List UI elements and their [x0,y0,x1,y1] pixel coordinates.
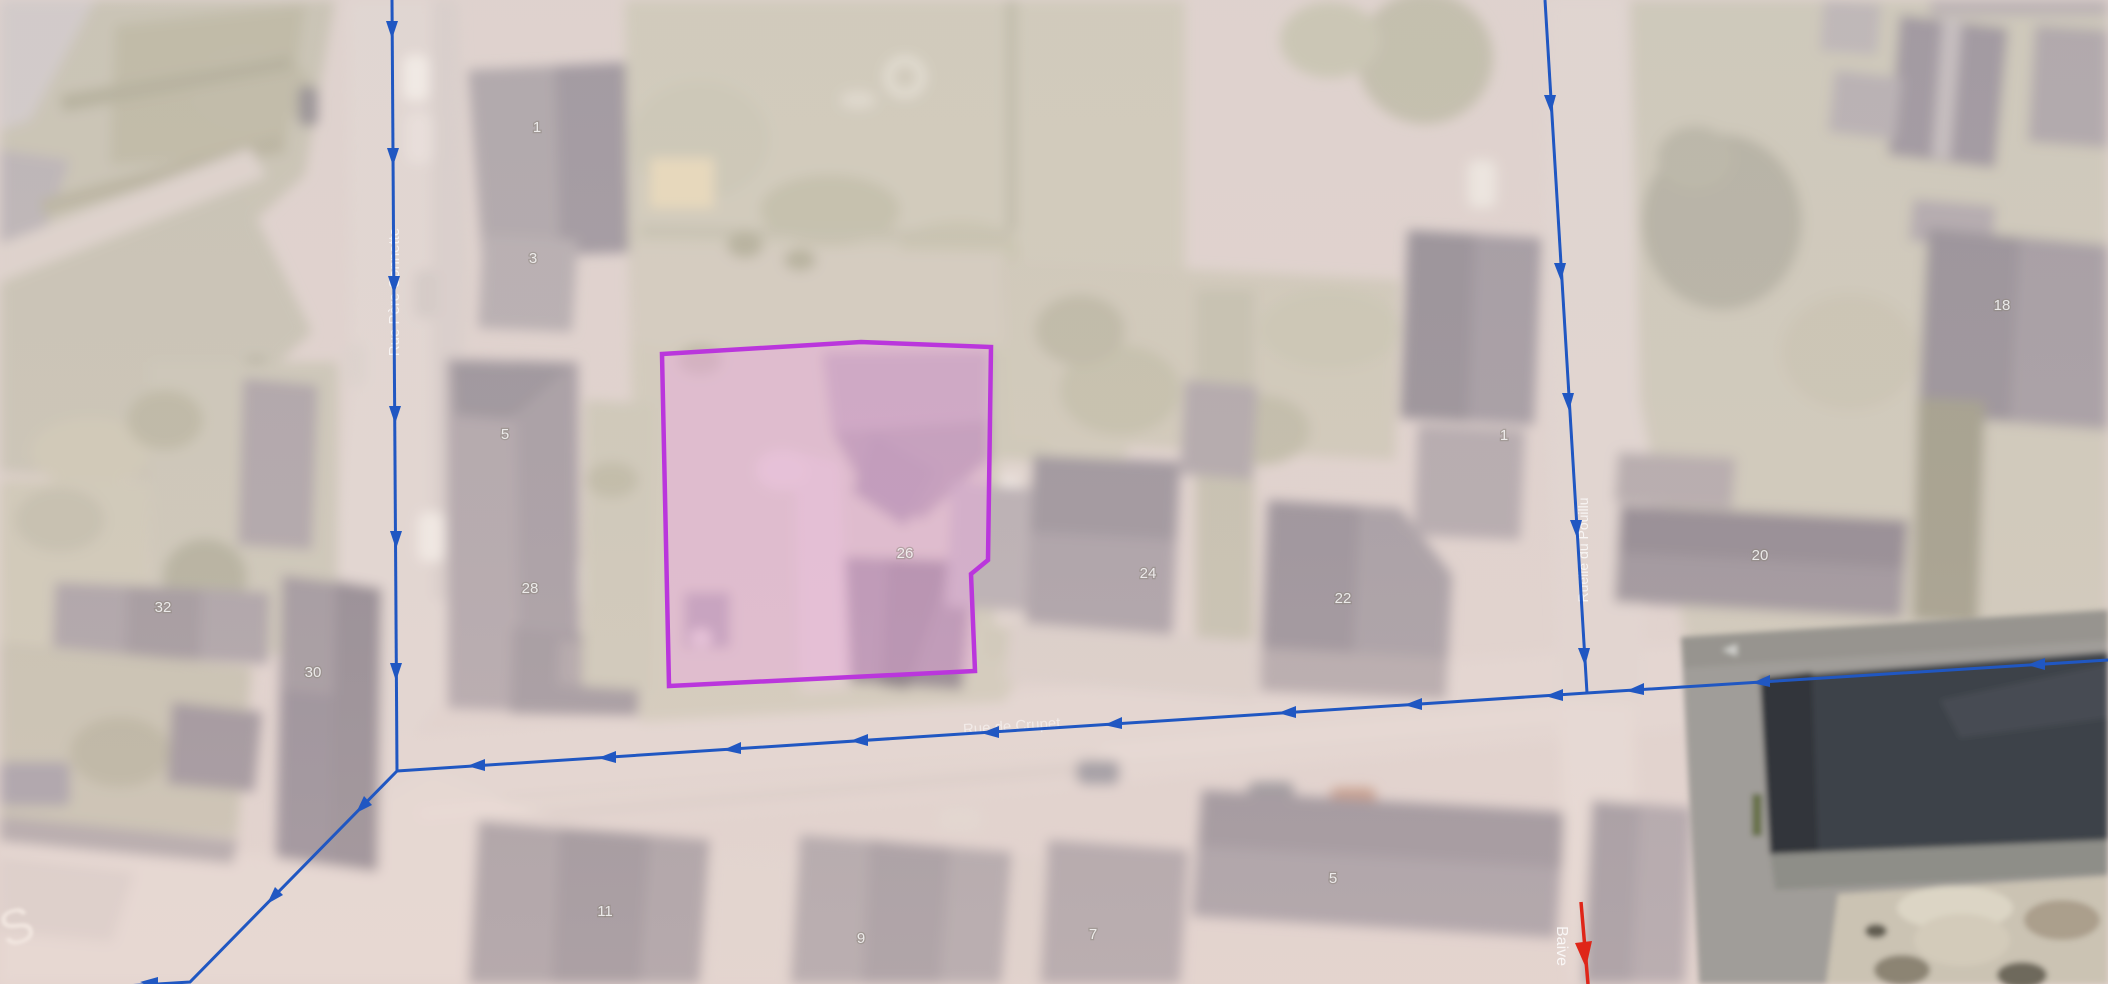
svg-text:7: 7 [1089,926,1097,943]
svg-text:5: 5 [1329,870,1337,887]
svg-text:30: 30 [305,664,322,681]
svg-text:5: 5 [501,426,509,443]
svg-text:20: 20 [1752,547,1769,564]
svg-text:26: 26 [897,545,914,562]
svg-text:28: 28 [522,580,539,597]
svg-text:11: 11 [597,903,613,920]
svg-text:Baive: Baive [1553,926,1570,966]
svg-text:9: 9 [857,930,865,947]
svg-text:3: 3 [529,250,537,267]
svg-text:32: 32 [155,599,172,616]
svg-text:1: 1 [1500,427,1508,444]
svg-text:1: 1 [533,119,541,136]
svg-text:24: 24 [1140,565,1157,582]
svg-text:22: 22 [1335,590,1352,607]
svg-text:18: 18 [1994,297,2011,314]
